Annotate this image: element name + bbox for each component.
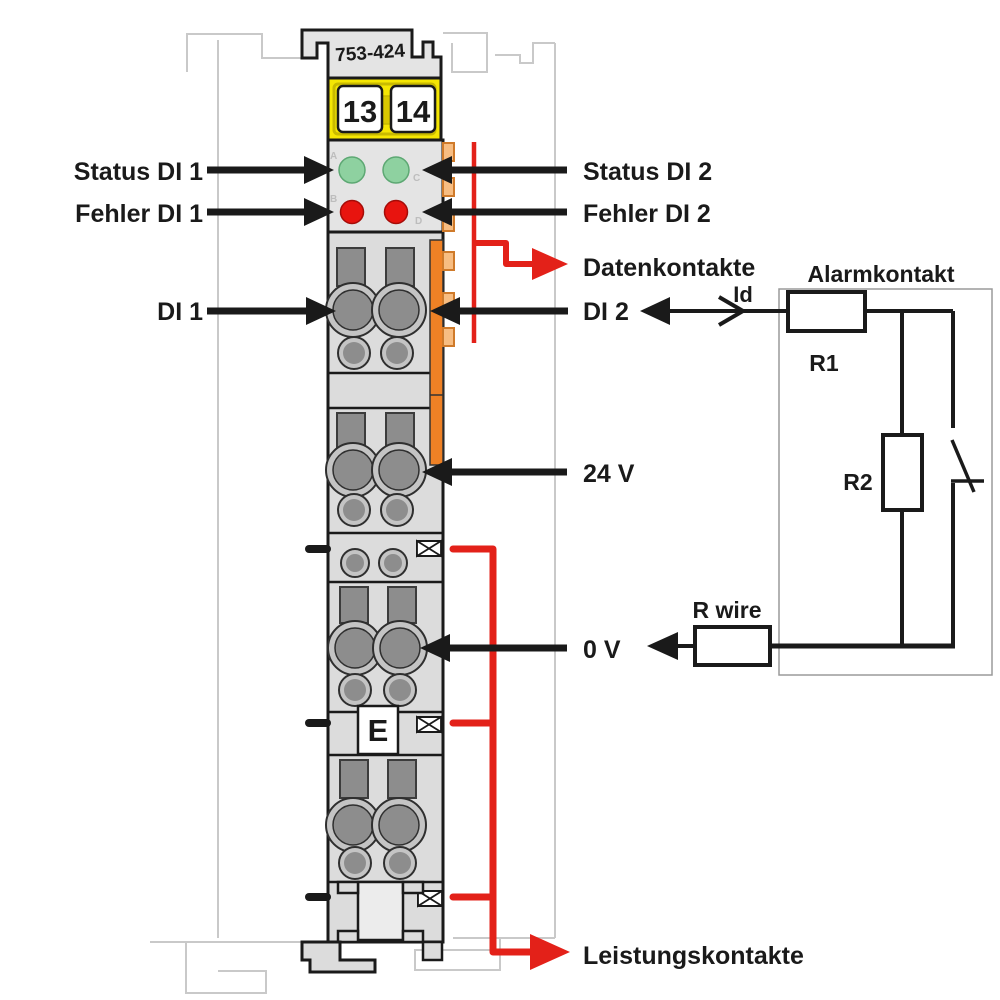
label-leistungskontakte: Leistungskontakte — [583, 942, 804, 970]
label-24v: 24 V — [583, 460, 635, 488]
label-di1: DI 1 — [157, 298, 203, 326]
bore — [379, 805, 419, 845]
label-r2: R2 — [843, 469, 872, 495]
label-datenkontakte: Datenkontakte — [583, 254, 755, 282]
label-di2: DI 2 — [583, 298, 629, 326]
label-rwire: R wire — [692, 597, 761, 623]
resistor-r1 — [788, 292, 865, 331]
foot-step — [403, 931, 423, 942]
power-jumper-trace — [453, 549, 570, 970]
bore — [333, 450, 373, 490]
jumper-contact-icon — [417, 717, 441, 732]
led-fehler-di2 — [385, 201, 408, 224]
resistor-rwire — [695, 627, 770, 665]
label-status-di2: Status DI 2 — [583, 158, 712, 186]
power-arrowhead — [530, 934, 570, 970]
bore — [333, 290, 373, 330]
terminal-13-label: 13 — [343, 94, 377, 129]
bore — [343, 499, 365, 521]
rail-right-top — [443, 33, 555, 72]
contact-tab — [443, 328, 454, 346]
led-letter-a: A — [330, 151, 337, 162]
data-arrowhead — [532, 248, 568, 280]
bore — [344, 852, 366, 874]
clamp-opening — [388, 760, 416, 798]
clamp-opening — [337, 248, 365, 286]
bore — [344, 679, 366, 701]
bore — [333, 805, 373, 845]
power-jumper-line — [453, 549, 532, 952]
bore — [379, 290, 419, 330]
rail-left-bottom — [150, 942, 302, 993]
foot-hook — [302, 942, 375, 972]
contact-tick — [305, 719, 331, 727]
label-id-current: Id — [733, 282, 753, 307]
clamp-opening — [340, 760, 368, 798]
label-r1: R1 — [809, 350, 839, 376]
label-fehler-di1: Fehler DI 1 — [75, 200, 203, 228]
annotation-labels: 753-424 13 14 E Status DI 1 Fehler DI 1 … — [74, 41, 955, 970]
led-status-di1 — [339, 157, 365, 183]
clamp-opening — [386, 248, 414, 286]
led-fehler-di1 — [341, 201, 364, 224]
foot-step — [403, 882, 423, 893]
bore — [389, 852, 411, 874]
diagram-canvas: A B C D — [0, 0, 1000, 1000]
foot-step — [338, 882, 358, 893]
label-fehler-di2: Fehler DI 2 — [583, 200, 711, 228]
label-0v: 0 V — [583, 636, 621, 664]
foot-latch — [358, 882, 403, 940]
rwire-arrowhead — [647, 632, 678, 660]
bore — [389, 679, 411, 701]
contact-tick — [305, 893, 331, 901]
bore — [379, 450, 419, 490]
data-branch-line — [474, 243, 534, 264]
bore — [346, 554, 364, 572]
terminal-14-label: 14 — [396, 94, 431, 129]
bore — [380, 628, 420, 668]
led-letter-d: D — [415, 216, 422, 227]
switch-blade — [952, 440, 974, 492]
contact-tick — [305, 545, 331, 553]
bore — [335, 628, 375, 668]
contact-tab — [443, 252, 454, 270]
clamp-opening — [388, 587, 416, 623]
bore — [343, 342, 365, 364]
orange-side-rail — [430, 240, 443, 465]
label-status-di1: Status DI 1 — [74, 158, 203, 186]
led-status-di2 — [383, 157, 409, 183]
di2-arrowhead — [640, 297, 670, 325]
clamp-opening — [340, 587, 368, 623]
led-letter-b: B — [330, 194, 337, 205]
foot-tab-right — [423, 942, 442, 960]
resistor-r2 — [883, 435, 922, 510]
jumper-contact-icon — [417, 541, 441, 556]
rail-left-top — [187, 34, 302, 72]
label-alarmkontakt: Alarmkontakt — [808, 261, 955, 287]
led-letter-c: C — [413, 173, 420, 184]
bore — [386, 342, 408, 364]
foot-step — [338, 931, 358, 942]
bore — [384, 554, 402, 572]
bore — [386, 499, 408, 521]
earth-marker-label: E — [368, 713, 389, 748]
wiring-diagram: A B C D — [0, 0, 1000, 1000]
